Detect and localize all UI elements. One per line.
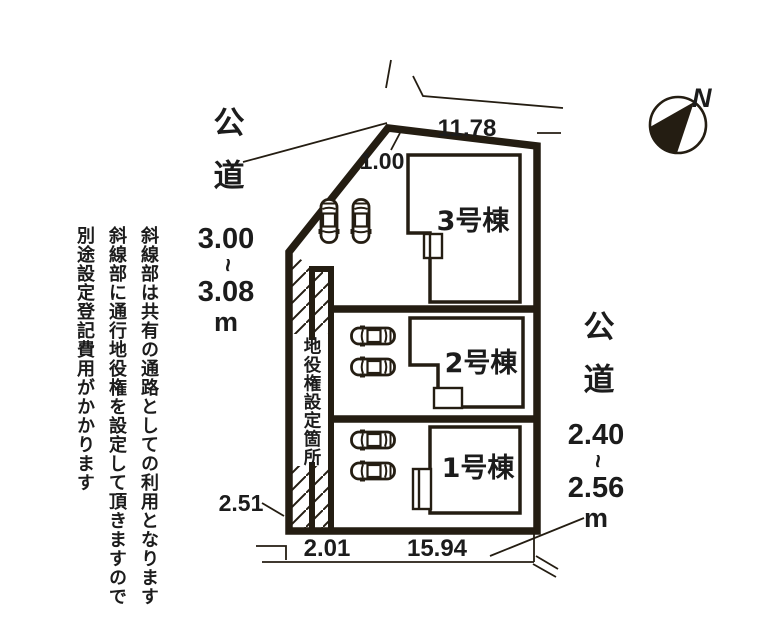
tilde: ~: [588, 454, 604, 468]
road-kanji: 公道: [574, 310, 619, 416]
road-label-left: 公道 3.00 ~ 3.08 m: [186, 106, 266, 335]
road-label-right: 公道 2.40 ~ 2.56 m: [556, 310, 636, 531]
road-kanji: 公道: [204, 106, 249, 212]
road-unit: m: [584, 505, 608, 531]
building-2-porch: [434, 388, 462, 408]
disclaimer-line: 斜線部に通行地役権を設定して頂きますので: [100, 226, 132, 610]
road-unit: m: [214, 309, 238, 335]
car-icon: [351, 200, 372, 243]
dim-bottom-frontage: 15.94: [407, 535, 468, 562]
car-icon: [352, 430, 395, 451]
tilde: ~: [218, 258, 234, 272]
dim-passage-width: 2.01: [304, 535, 351, 562]
easement-label: 地役権設定箇所: [299, 337, 323, 469]
road-width-min: 3.00: [198, 224, 254, 255]
road-width-max: 3.08: [198, 277, 254, 308]
building-1-label: 1号棟: [442, 453, 516, 484]
dim-left-corner: 2.51: [219, 490, 264, 516]
building-1-porch: [413, 469, 431, 509]
building-3-label: 3号棟: [437, 206, 511, 237]
dim-top-corner: 1.00: [360, 148, 405, 174]
disclaimer-line: 斜線部は共有の通路としての利用となります: [132, 226, 164, 610]
site-plan-page: N 3号棟 2号棟 1号棟 11.78 1.00 2.51 2.01 15.94…: [0, 0, 772, 626]
disclaimer-line: 別途設定登記費用がかかります: [68, 226, 100, 610]
north-arrow: [650, 102, 694, 153]
car-icon: [352, 357, 395, 378]
compass-north-label: N: [692, 83, 712, 113]
dim-top-frontage: 11.78: [438, 115, 497, 142]
car-icon: [352, 326, 395, 347]
road-width-max: 2.56: [568, 473, 624, 504]
disclaimer-note: 斜線部は共有の通路としての利用となります 斜線部に通行地役権を設定して頂きますの…: [62, 226, 164, 610]
car-icon: [319, 200, 340, 243]
car-icon: [352, 461, 395, 482]
building-3-porch: [424, 234, 442, 258]
road-width-min: 2.40: [568, 420, 624, 451]
compass-icon: N: [650, 83, 712, 153]
building-2-label: 2号棟: [445, 348, 519, 379]
